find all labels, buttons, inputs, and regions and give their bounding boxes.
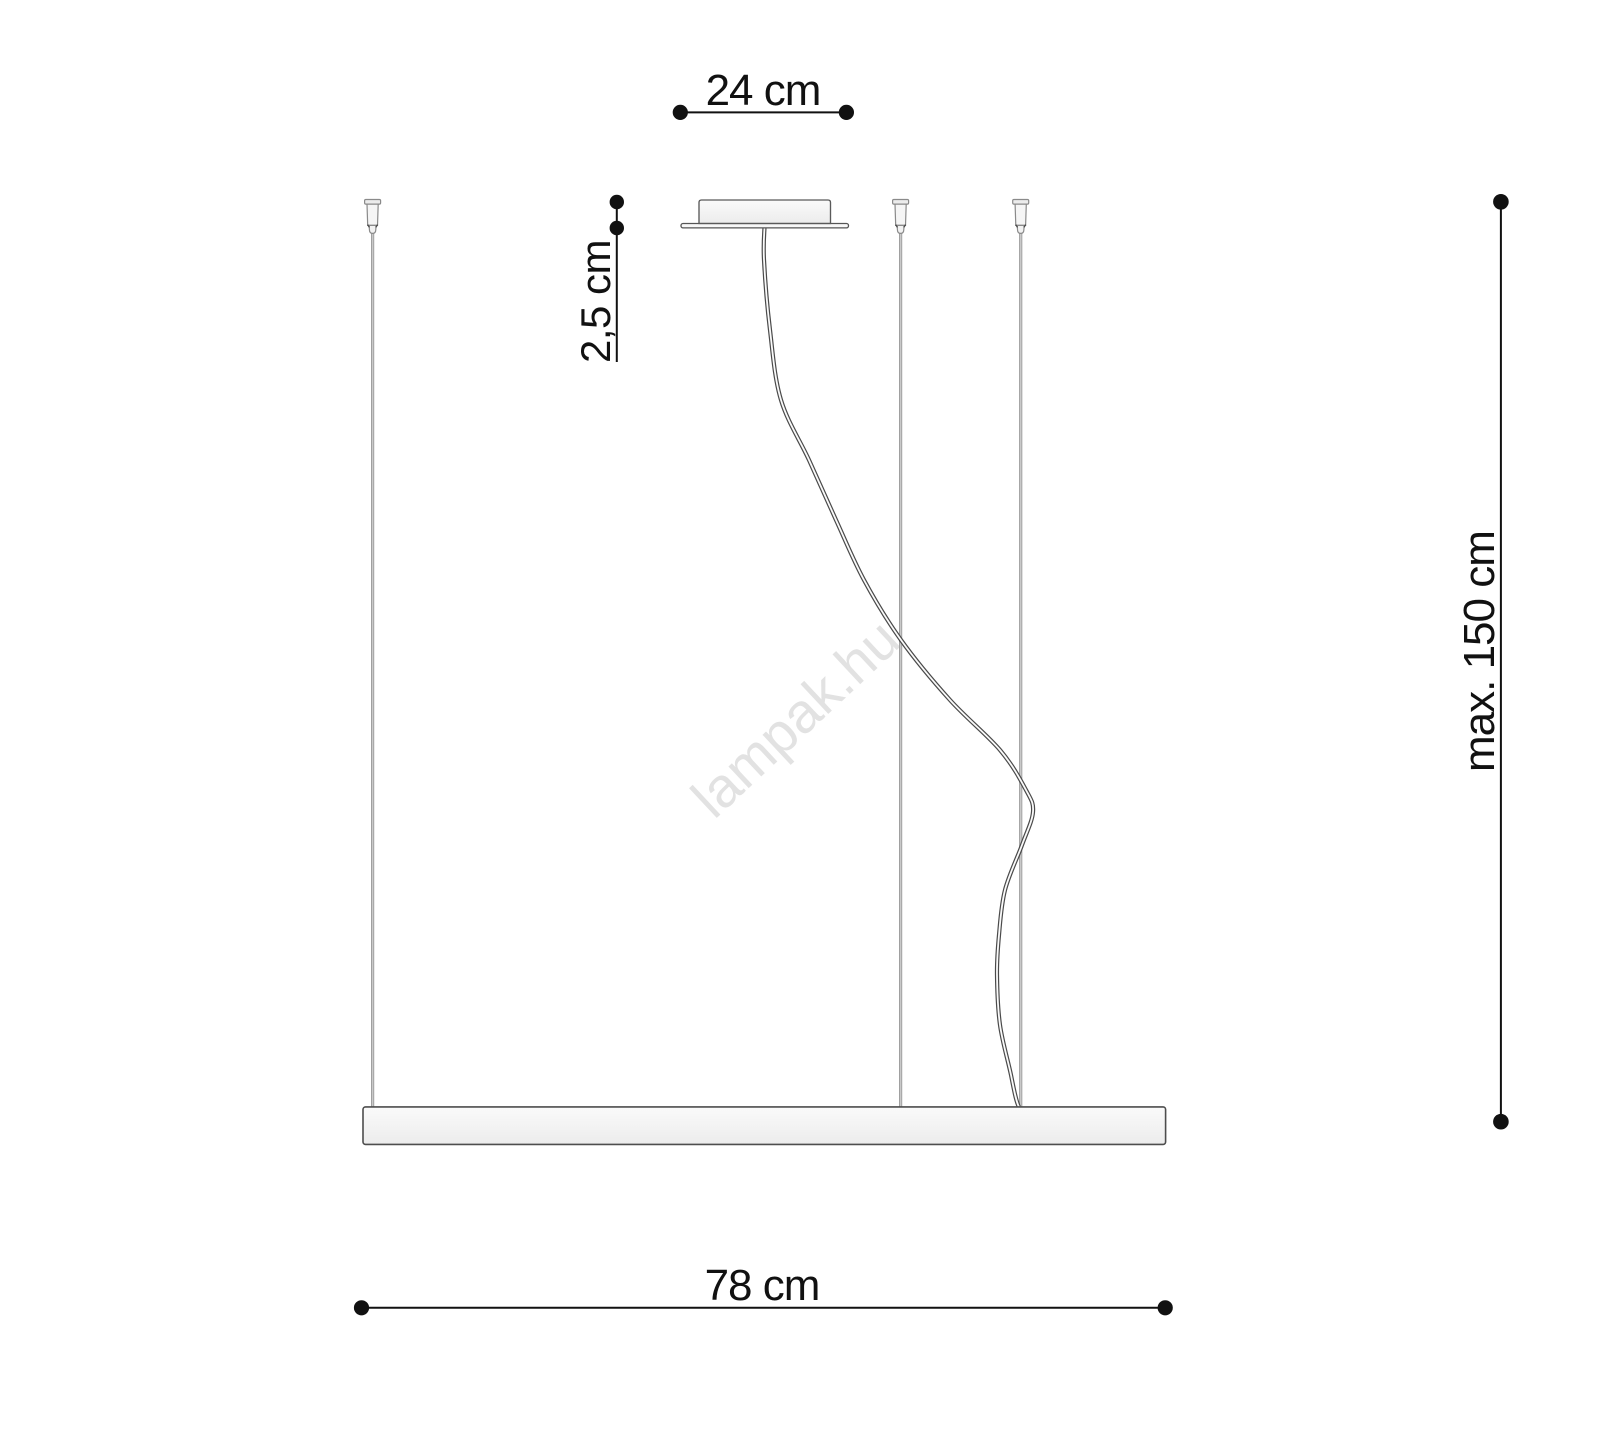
svg-text:24 cm: 24 cm: [706, 66, 821, 115]
svg-text:max. 150 cm: max. 150 cm: [1455, 531, 1504, 772]
svg-text:2,5 cm: 2,5 cm: [572, 240, 619, 363]
svg-text:78 cm: 78 cm: [705, 1261, 820, 1310]
